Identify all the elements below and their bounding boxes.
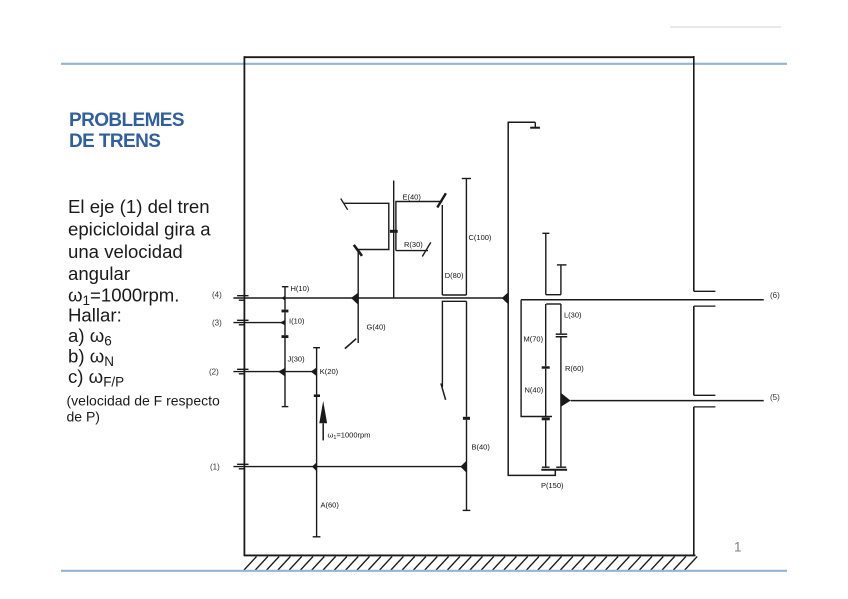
svg-text:Hallar:: Hallar: xyxy=(68,305,122,326)
svg-text:L(30): L(30) xyxy=(564,311,582,320)
svg-text:J(30): J(30) xyxy=(288,355,306,364)
svg-text:G(40): G(40) xyxy=(367,323,387,332)
svg-text:K(20): K(20) xyxy=(320,367,339,376)
svg-text:D(80): D(80) xyxy=(445,271,464,280)
svg-text:(4): (4) xyxy=(212,291,222,300)
svg-text:P(150): P(150) xyxy=(541,481,564,490)
svg-text:M(70): M(70) xyxy=(524,335,544,344)
svg-text:(6): (6) xyxy=(770,291,780,300)
svg-text:(velocidad de F respecto: (velocidad de F respecto xyxy=(67,393,221,409)
svg-text:(5): (5) xyxy=(770,393,780,402)
svg-text:(2): (2) xyxy=(209,368,219,377)
svg-text:DE TRENS: DE TRENS xyxy=(69,131,160,152)
svg-text:C(100): C(100) xyxy=(469,233,492,242)
svg-text:R(60): R(60) xyxy=(565,364,584,373)
svg-text:(1): (1) xyxy=(210,463,220,472)
svg-text:H(10): H(10) xyxy=(291,284,310,293)
svg-text:epicicloidal gira a: epicicloidal gira a xyxy=(68,218,211,239)
svg-text:El eje (1) del tren: El eje (1) del tren xyxy=(68,196,210,217)
svg-text:ω1=1000rpm: ω1=1000rpm xyxy=(328,431,371,442)
svg-text:de P): de P) xyxy=(67,409,100,425)
svg-text:una velocidad: una velocidad xyxy=(68,241,183,262)
svg-text:I(10): I(10) xyxy=(289,317,305,326)
svg-text:(3): (3) xyxy=(212,319,222,328)
svg-text:R(30): R(30) xyxy=(404,240,423,249)
svg-text:angular: angular xyxy=(68,263,130,284)
svg-text:N(40): N(40) xyxy=(525,386,544,395)
svg-text:1: 1 xyxy=(734,540,742,555)
svg-text:PROBLEMES: PROBLEMES xyxy=(69,110,184,131)
svg-text:E(40): E(40) xyxy=(403,193,422,202)
svg-text:B(40): B(40) xyxy=(472,443,491,452)
svg-text:A(60): A(60) xyxy=(321,501,340,510)
svg-text:c) ωF/P: c) ωF/P xyxy=(68,366,124,389)
